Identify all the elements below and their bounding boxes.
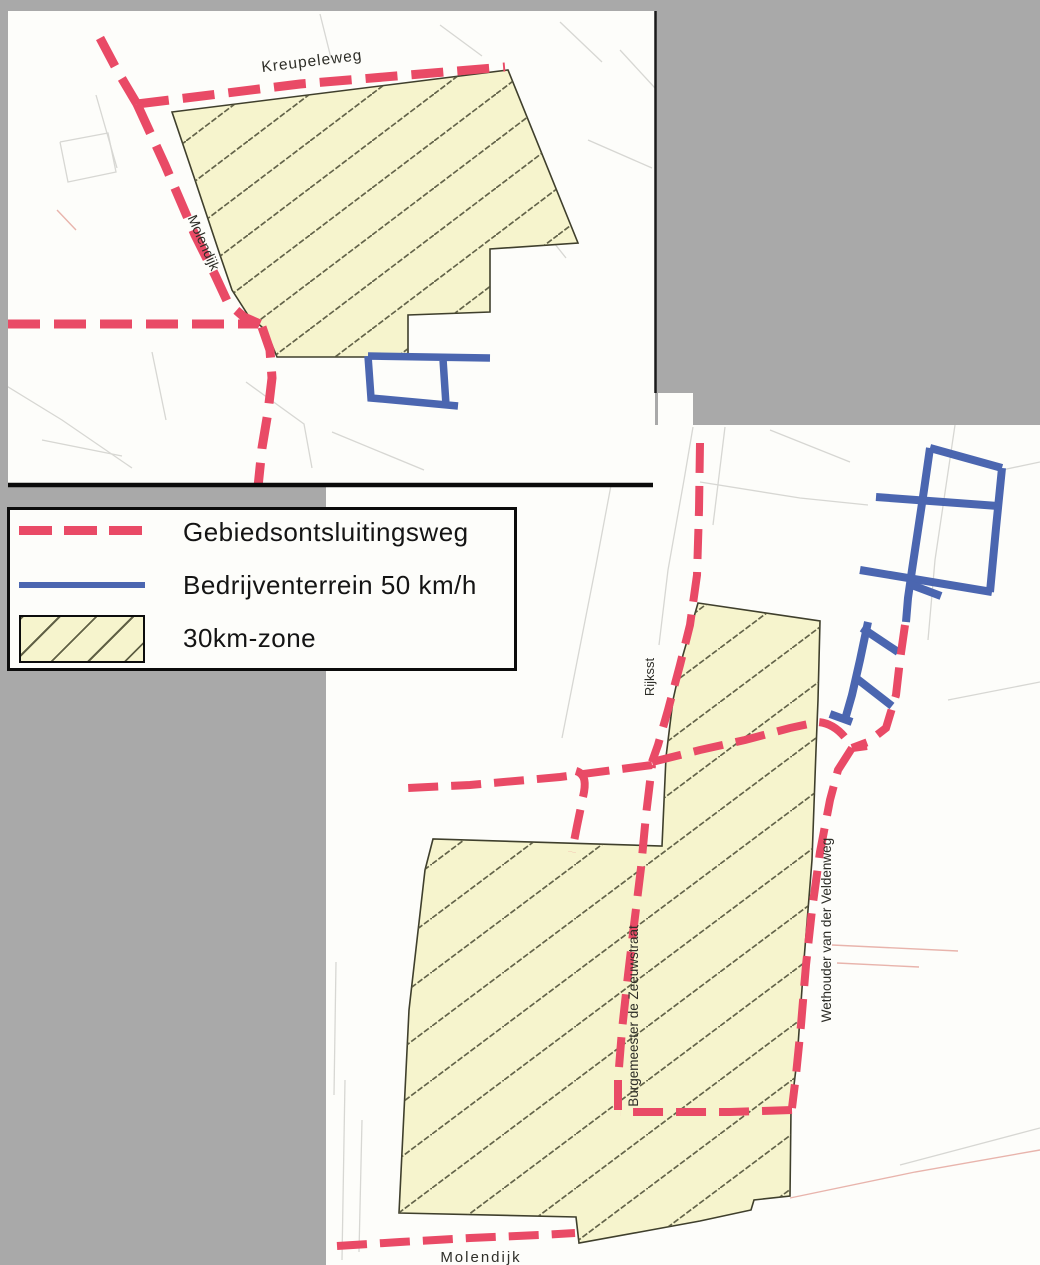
road-label-burgemeester: Burgemeester de Zeeuwstraat — [626, 925, 641, 1107]
road-south-connector — [620, 1110, 792, 1112]
top-map-panel: Kreupeleweg Molendijk — [0, 11, 656, 487]
legend-label-gebiedsontsluitingsweg: Gebiedsontsluitingsweg — [183, 517, 469, 548]
legend-hatch-swatch — [19, 615, 145, 663]
legend-red-dashed-swatch — [19, 526, 145, 535]
legend-box: Gebiedsontsluitingsweg Bedrijventerrein … — [7, 507, 517, 671]
road-label-molendijk-bottom: Molendijk — [440, 1249, 521, 1265]
road-label-rijksstraat: Rijksst — [642, 657, 657, 696]
legend-label-bedrijventerrein: Bedrijventerrein 50 km/h — [183, 570, 477, 601]
legend-blue-line-swatch — [19, 582, 145, 588]
legend-label-30km-zone: 30km-zone — [183, 623, 316, 654]
road-label-wethouder: Wethouder van der Veldenweg — [819, 838, 834, 1022]
scanned-traffic-zone-map: Rijksst Burgemeester de Zeeuwstraat Weth… — [0, 0, 1040, 1265]
